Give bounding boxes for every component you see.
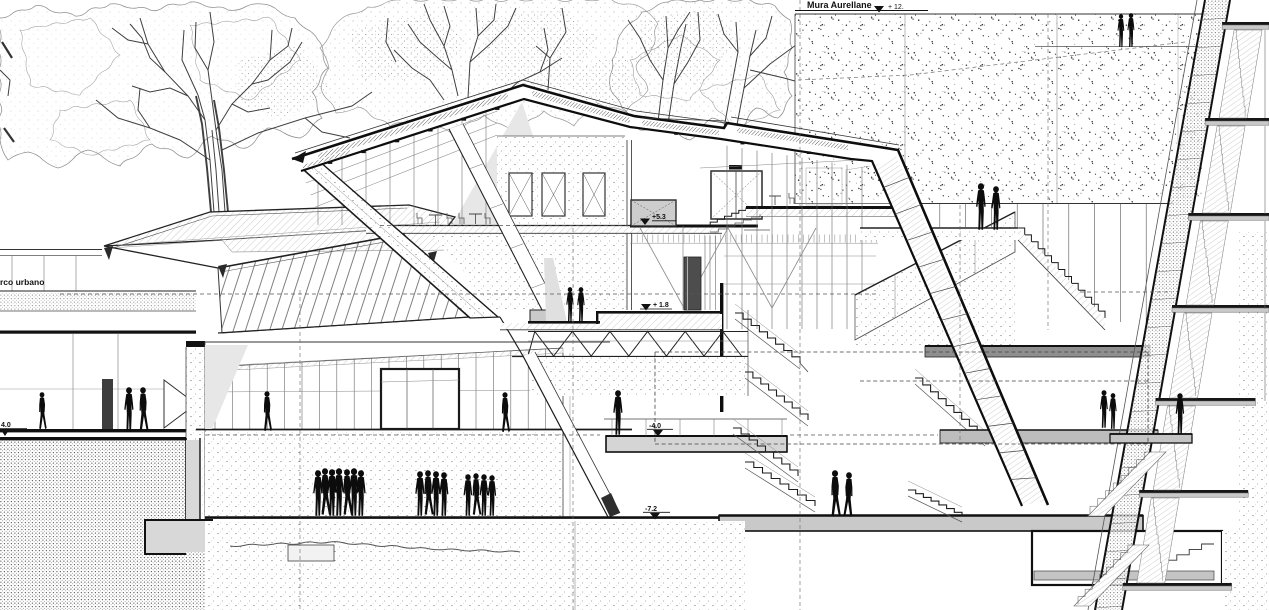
svg-text:+5.3: +5.3 bbox=[652, 214, 666, 221]
svg-text:rco urbano: rco urbano bbox=[0, 277, 44, 287]
svg-text:Mura Aurellane: Mura Aurellane bbox=[807, 0, 872, 10]
svg-text:4.0: 4.0 bbox=[1, 422, 11, 429]
svg-text:+ 12.: + 12. bbox=[888, 4, 904, 11]
svg-text:+ 1.8: + 1.8 bbox=[653, 302, 669, 309]
